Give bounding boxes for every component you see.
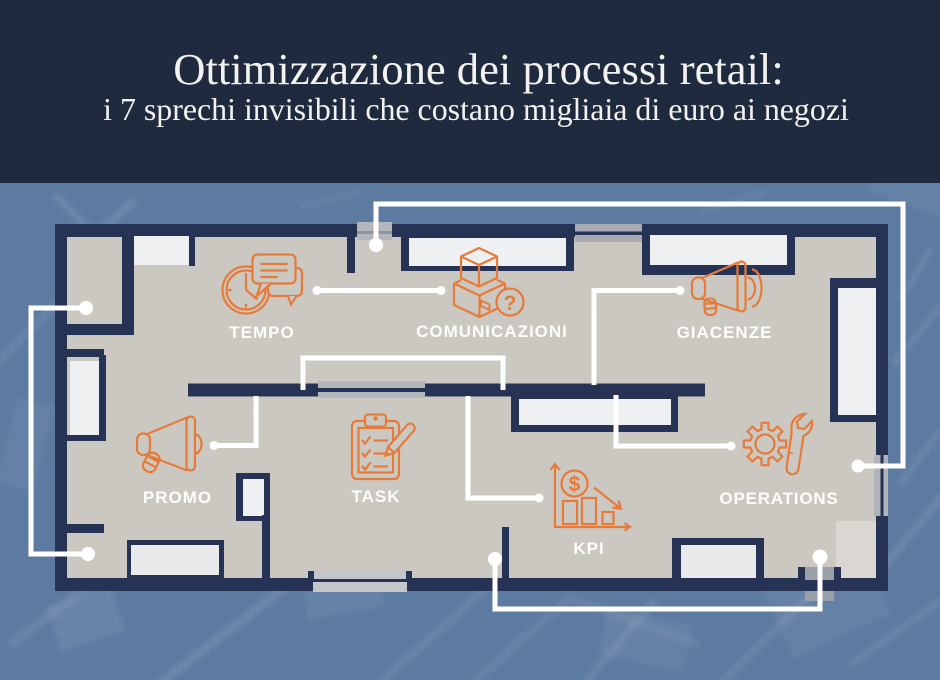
svg-text:GIACENZE: GIACENZE <box>677 323 773 342</box>
svg-text:OPERATIONS: OPERATIONS <box>719 489 838 508</box>
svg-text:TEMPO: TEMPO <box>229 323 294 342</box>
svg-text:Ottimizzazione dei processi re: Ottimizzazione dei processi retail: <box>173 44 783 94</box>
svg-text:KPI: KPI <box>573 539 604 558</box>
svg-text:PROMO: PROMO <box>143 488 212 507</box>
svg-text:i 7 sprechi invisibili che cos: i 7 sprechi invisibili che costano migli… <box>103 92 849 127</box>
svg-text:COMUNICAZIONI: COMUNICAZIONI <box>416 322 568 341</box>
svg-text:TASK: TASK <box>351 487 400 506</box>
svg-text:$: $ <box>569 473 581 496</box>
svg-text:?: ? <box>504 292 517 315</box>
